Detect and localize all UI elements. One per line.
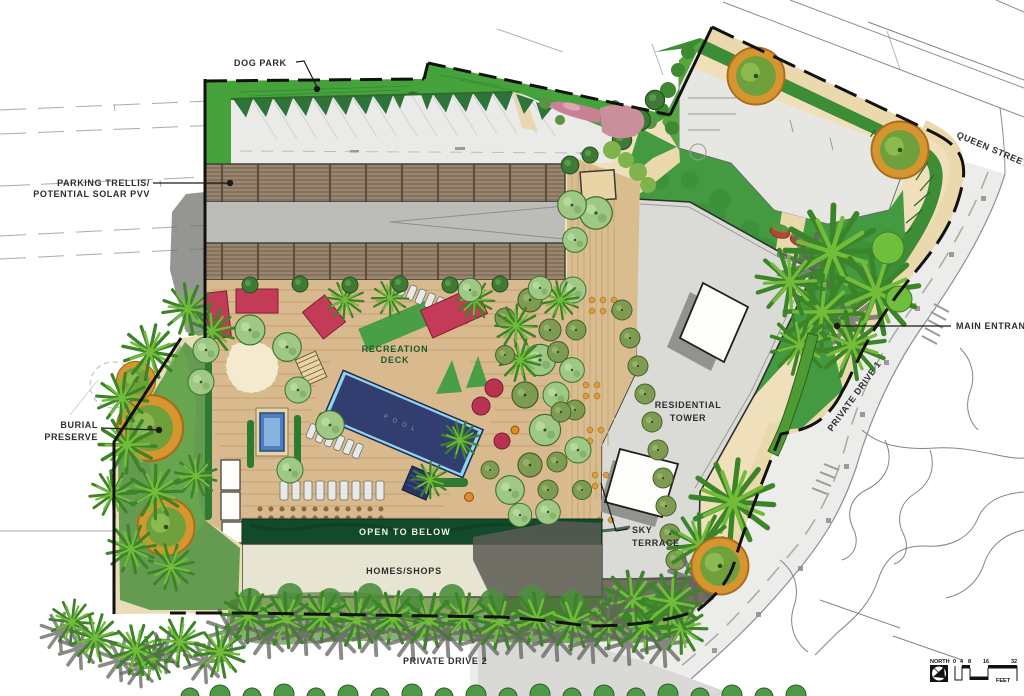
svg-text:MAIN ENTRANCE: MAIN ENTRANCE	[956, 321, 1024, 331]
svg-text:PRESERVE: PRESERVE	[44, 432, 98, 442]
svg-text:RESIDENTIAL: RESIDENTIAL	[655, 400, 722, 410]
svg-text:BURIAL: BURIAL	[60, 420, 98, 430]
svg-text:TERRACE: TERRACE	[632, 538, 680, 548]
svg-text:16: 16	[983, 659, 989, 665]
svg-text:RECREATION: RECREATION	[362, 344, 429, 354]
svg-text:SKY: SKY	[632, 525, 652, 535]
svg-text:PRIVATE DRIVE 2: PRIVATE DRIVE 2	[403, 656, 487, 666]
svg-text:TOWER: TOWER	[670, 413, 706, 423]
svg-text:32: 32	[1011, 659, 1017, 665]
svg-text:POTENTIAL SOLAR PVV: POTENTIAL SOLAR PVV	[33, 189, 150, 199]
svg-text:DOG PARK: DOG PARK	[234, 58, 287, 68]
svg-text:DECK: DECK	[381, 355, 410, 365]
svg-text:NORTH: NORTH	[930, 659, 950, 665]
svg-text:OPEN TO BELOW: OPEN TO BELOW	[359, 527, 451, 537]
svg-text:HOMES/SHOPS: HOMES/SHOPS	[366, 566, 442, 576]
svg-text:FEET: FEET	[996, 678, 1011, 684]
svg-text:8: 8	[968, 659, 971, 665]
svg-text:0: 0	[953, 659, 956, 665]
svg-text:PARKING TRELLIS/: PARKING TRELLIS/	[57, 178, 150, 188]
